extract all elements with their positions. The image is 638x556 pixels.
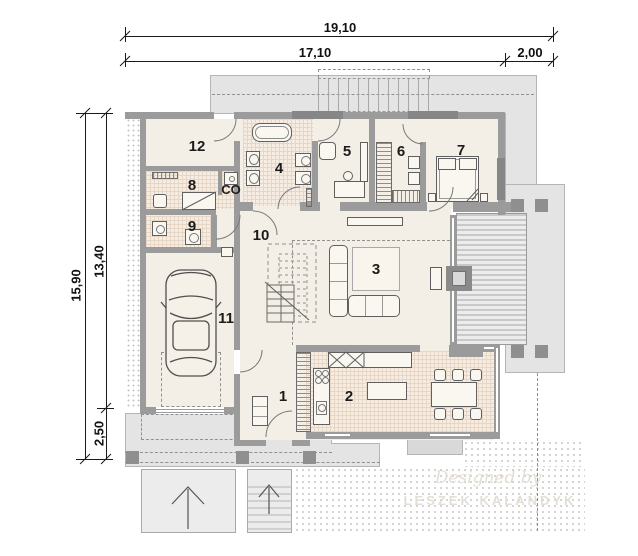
porch-pillar-3 (303, 451, 316, 464)
kitchen-counter-left (313, 368, 330, 425)
porch-pillar-2 (236, 451, 249, 464)
sink-room8-icon (153, 194, 167, 208)
room-label-9: 9 (180, 218, 204, 235)
cooktop-burner-1 (315, 370, 322, 377)
toilet-bowl-2 (301, 174, 311, 184)
garage-door-line-2 (156, 412, 224, 413)
insulation-strip-left (126, 113, 140, 408)
sofa-horizontal (348, 295, 400, 317)
dining-chair-5 (452, 408, 464, 420)
wardrobe-shelf-icon (392, 190, 420, 203)
dim-porch-depth: 2,50 (92, 404, 107, 464)
porch-dashed-line-2 (125, 462, 380, 464)
pillow-1 (438, 158, 456, 170)
kitchen-sink-bowl (318, 404, 326, 412)
garage-wall-cabinet (221, 247, 233, 257)
room-label-2: 2 (337, 388, 361, 405)
window-kitchen-bottom (325, 434, 350, 436)
toilet-room9-bowl (156, 225, 165, 234)
window-top-2 (408, 111, 458, 119)
wall-rooms567-bottom-c (453, 202, 516, 212)
kitchen-island (367, 382, 407, 400)
radiator-bathroom (306, 188, 312, 207)
wall-4-5-lower (312, 141, 318, 209)
upper-floor-dashed-h (292, 240, 450, 242)
watermark-designed-by: Designed by (428, 468, 548, 488)
wall-garage-bottom-b (224, 407, 240, 414)
sofa-vertical (329, 245, 348, 317)
wall-5-6 (369, 112, 375, 203)
dining-chair-6 (470, 408, 482, 420)
cabinet-room5 (360, 142, 368, 182)
wall-left (140, 112, 146, 413)
floor-plan: 1 2 3 4 5 6 7 8 9 10 11 12 CO 19,10 17,1… (0, 0, 638, 556)
nightstand-1 (428, 193, 436, 202)
cabinet-room8 (182, 192, 216, 210)
wall-12-4-upper (234, 112, 240, 119)
sideboard-living (347, 217, 403, 226)
balcony-slats (318, 78, 430, 112)
room-label-3: 3 (364, 261, 388, 278)
sink-bowl-1 (249, 154, 259, 165)
driveway (141, 469, 236, 533)
wall-top-left (125, 112, 214, 119)
dim-terrace-width: 2,00 (500, 45, 560, 60)
parking-spot-dashed (161, 352, 221, 407)
entrance-steps (247, 469, 292, 533)
dining-porch-step (407, 439, 463, 455)
roof-overhang-right (505, 113, 537, 185)
terrace-pillar-4 (535, 345, 548, 358)
cooktop-burner-4 (322, 377, 329, 384)
side-table-room5 (343, 171, 353, 181)
gravel-area-2 (463, 440, 585, 467)
wall-room9-right (211, 215, 217, 247)
wall-garage-bottom-a (140, 407, 156, 414)
fireplace-inner (452, 271, 466, 286)
watermark-designer-name: LESZEK KALANDYK (390, 493, 590, 508)
terrace-pillar-2 (535, 199, 548, 212)
wall-6-7-lower (420, 142, 426, 203)
dining-table (431, 382, 477, 407)
room-label-8: 8 (180, 177, 204, 194)
glass-wall-dining-right-glazing (496, 348, 498, 436)
desk-icon (334, 181, 365, 198)
wall-entry-bottom-a (234, 440, 266, 446)
dim-ext-6 (76, 113, 113, 114)
dim-total-depth: 15,90 (69, 256, 84, 316)
porch-dashed-line-1 (125, 452, 332, 454)
dim-ext-2 (553, 27, 554, 42)
room-label-7: 7 (449, 142, 473, 159)
porch-pillar-1 (126, 451, 139, 464)
cooktop-burner-3 (315, 377, 322, 384)
wall-kitchen-top (296, 345, 420, 352)
terrace-pillar-1 (511, 199, 524, 212)
dim-ext-3 (125, 53, 126, 67)
window-dining-bottom (430, 434, 470, 436)
dim-total-width: 19,10 (310, 20, 370, 35)
dining-chair-2 (452, 369, 464, 381)
basement-stairs-hatch (296, 352, 311, 432)
wall-bath-bottom-a (240, 202, 253, 211)
radiator-room8 (152, 172, 178, 179)
garage-door-line-1 (156, 409, 224, 410)
room-label-6: 6 (389, 143, 413, 160)
dining-chair-4 (434, 408, 446, 420)
bathtub-inner (255, 126, 289, 139)
cooktop-burner-2 (322, 370, 329, 377)
terrace-pillar-3 (511, 345, 524, 358)
dining-chair-1 (434, 369, 446, 381)
entry-bench (252, 396, 268, 426)
nightstand-2 (480, 193, 488, 202)
kitchen-upper-cabinets (328, 352, 412, 368)
wall-entry-bottom-b (292, 440, 310, 446)
dining-chair-3 (470, 369, 482, 381)
balcony-outline-dashed (318, 69, 430, 78)
room-label-4: 4 (267, 160, 291, 177)
dim-line-total-width (125, 36, 554, 37)
room-label-1: 1 (271, 388, 295, 405)
tv-bench (430, 267, 442, 290)
office-chair-icon (319, 142, 336, 160)
dim-line-total-depth (85, 113, 86, 459)
room-label-10: 10 (249, 227, 273, 244)
dim-line-main-width (125, 61, 554, 62)
sink-bowl-2 (249, 173, 259, 184)
upper-floor-dashed-v (292, 240, 294, 345)
window-top-1 (292, 111, 343, 119)
toilet-bowl-1 (301, 156, 311, 166)
room-label-5: 5 (335, 143, 359, 160)
room-label-12: 12 (185, 138, 209, 155)
wardrobe-box-2 (408, 172, 420, 185)
pillow-2 (459, 158, 477, 170)
wall-dining-top-chunk (449, 345, 483, 357)
window-room7-right (497, 158, 505, 200)
dim-main-depth: 13,40 (92, 232, 107, 292)
dim-ext-1 (125, 27, 126, 42)
dim-main-width: 17,10 (285, 45, 345, 60)
room-label-11: 11 (214, 310, 238, 327)
wall-rooms567-bottom-b (340, 202, 427, 211)
room-label-co: CO (219, 182, 243, 197)
wall-hall-garage-upper (234, 215, 240, 350)
